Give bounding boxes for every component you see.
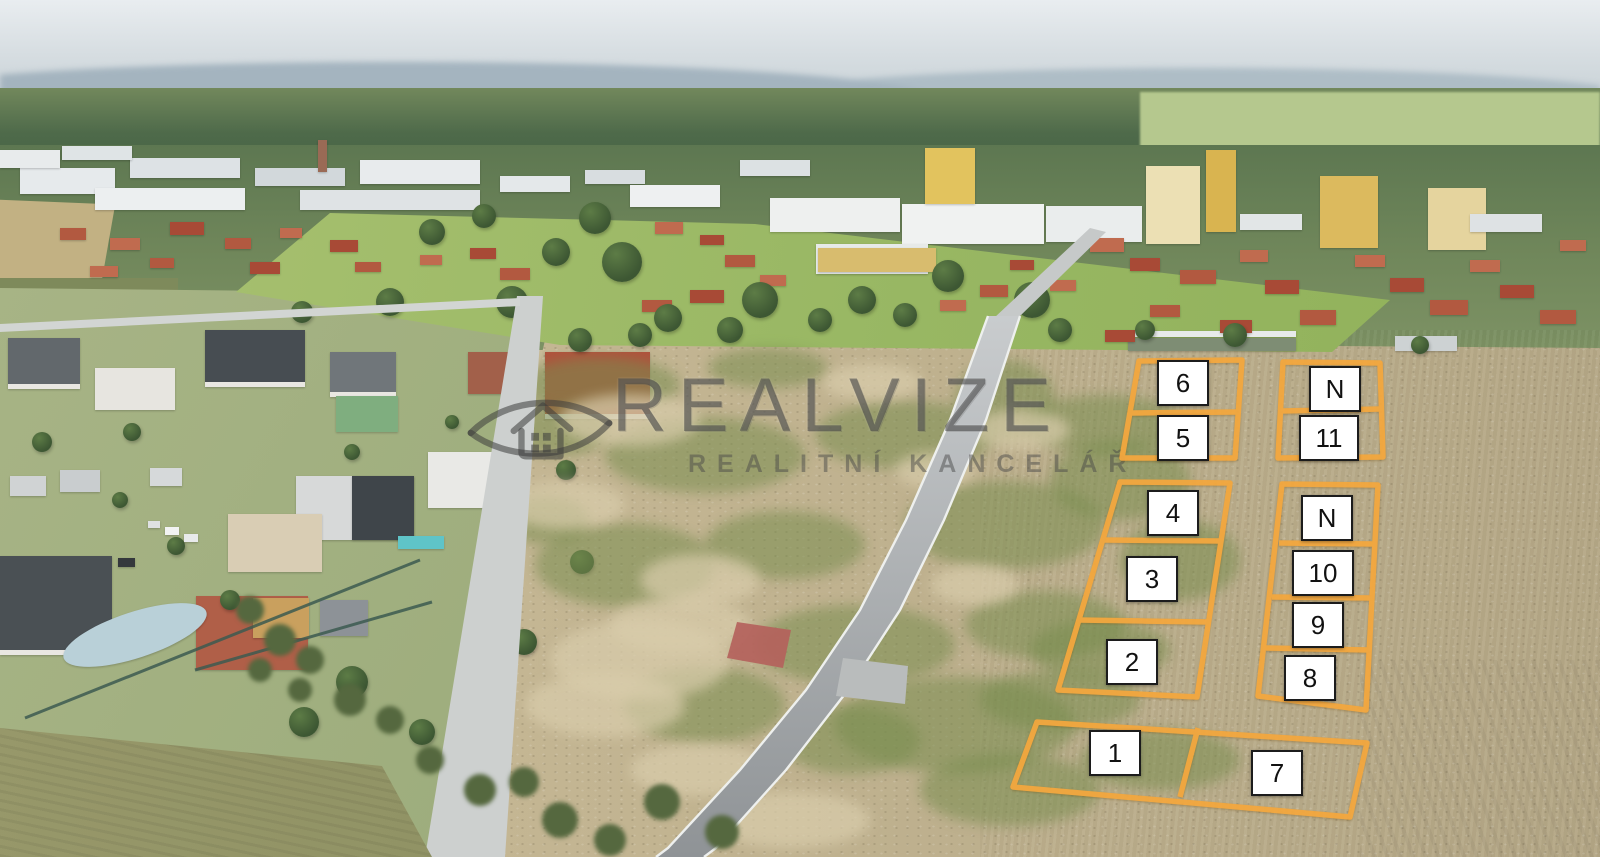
plot-label-6: 6 [1157, 360, 1209, 406]
plot-outlines [0, 0, 1600, 857]
plot-label-9: 9 [1292, 602, 1344, 648]
plot-label-n-mid: N [1301, 495, 1353, 541]
aerial-photo: REALVIZE REALITNÍ KANCELÁŘ [0, 0, 1600, 857]
plot-label-4: 4 [1147, 490, 1199, 536]
plot-label-11: 11 [1299, 415, 1359, 461]
plot-label-8: 8 [1284, 655, 1336, 701]
plot-label-2: 2 [1106, 639, 1158, 685]
plot-label-7: 7 [1251, 750, 1303, 796]
plot-label-n-top: N [1309, 366, 1361, 412]
plot-label-5: 5 [1157, 415, 1209, 461]
plot-label-1: 1 [1089, 730, 1141, 776]
plot-label-3: 3 [1126, 556, 1178, 602]
plot-group-1-7 [1013, 722, 1367, 817]
plot-label-10: 10 [1292, 550, 1354, 596]
